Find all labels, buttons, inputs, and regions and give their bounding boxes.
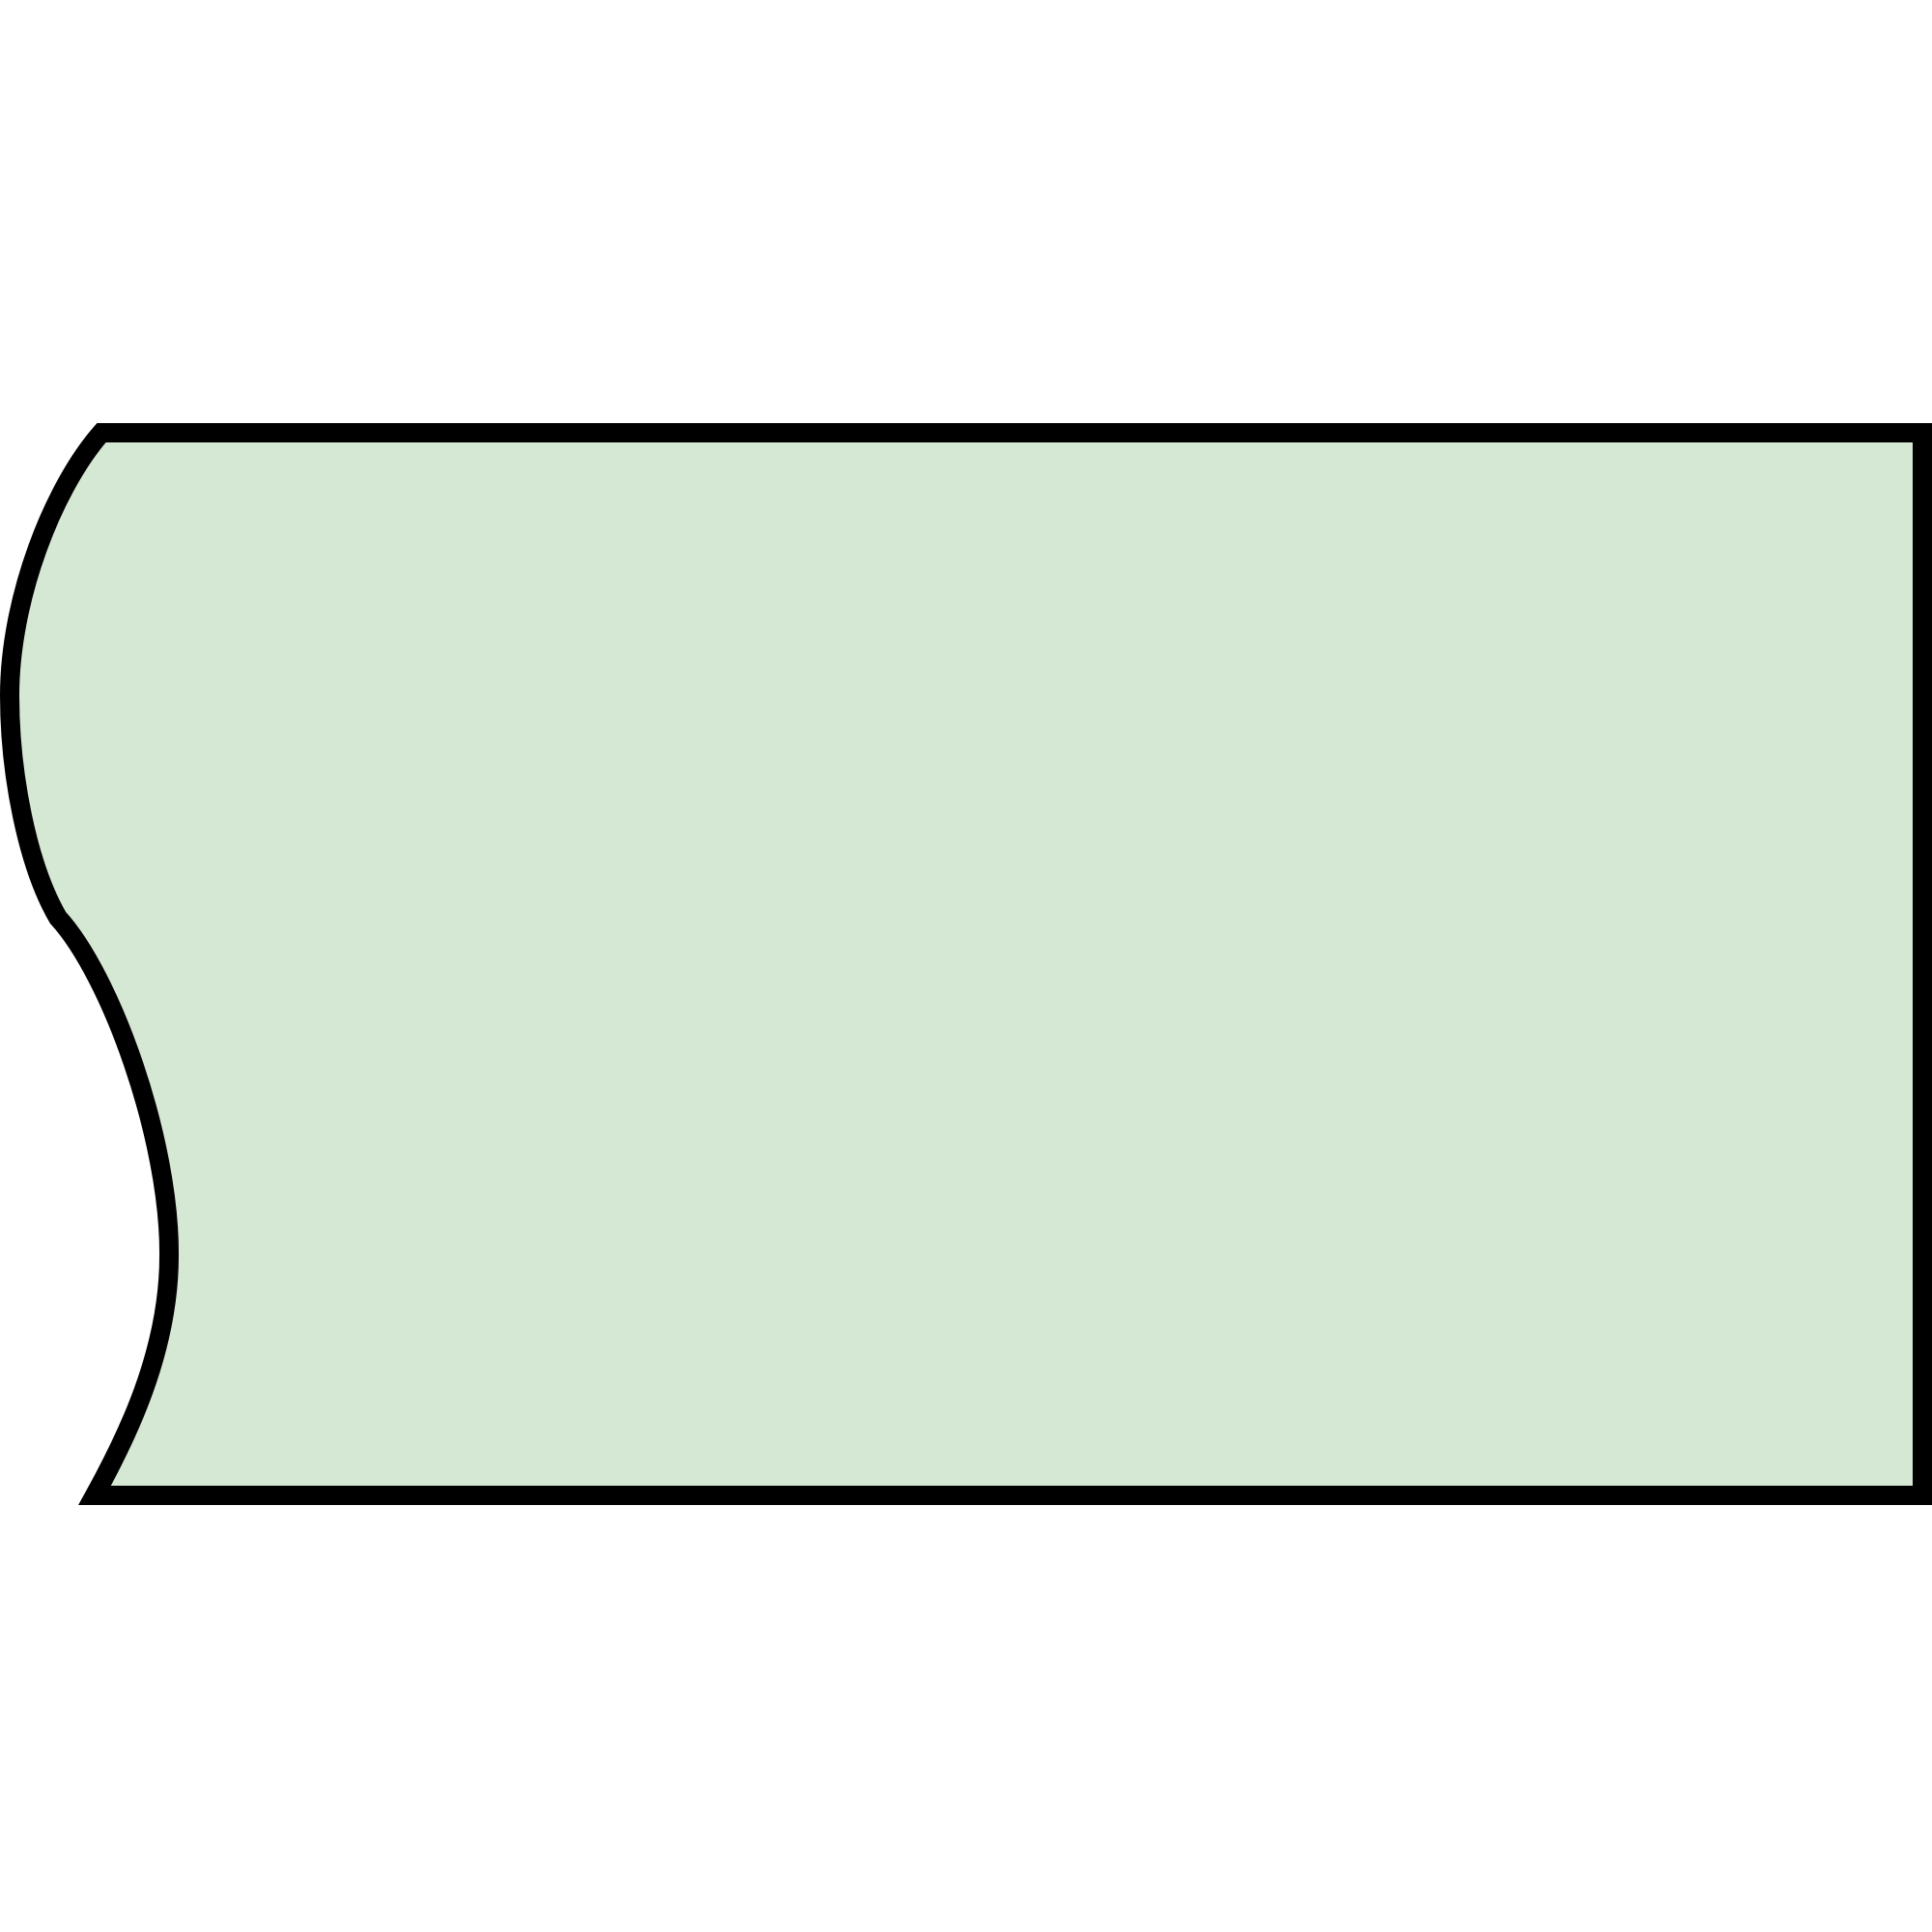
diagram-canvas: [0, 0, 1932, 1932]
torn-edge-panel-shape: [10, 433, 1922, 1495]
diagram-svg: [0, 0, 1932, 1932]
